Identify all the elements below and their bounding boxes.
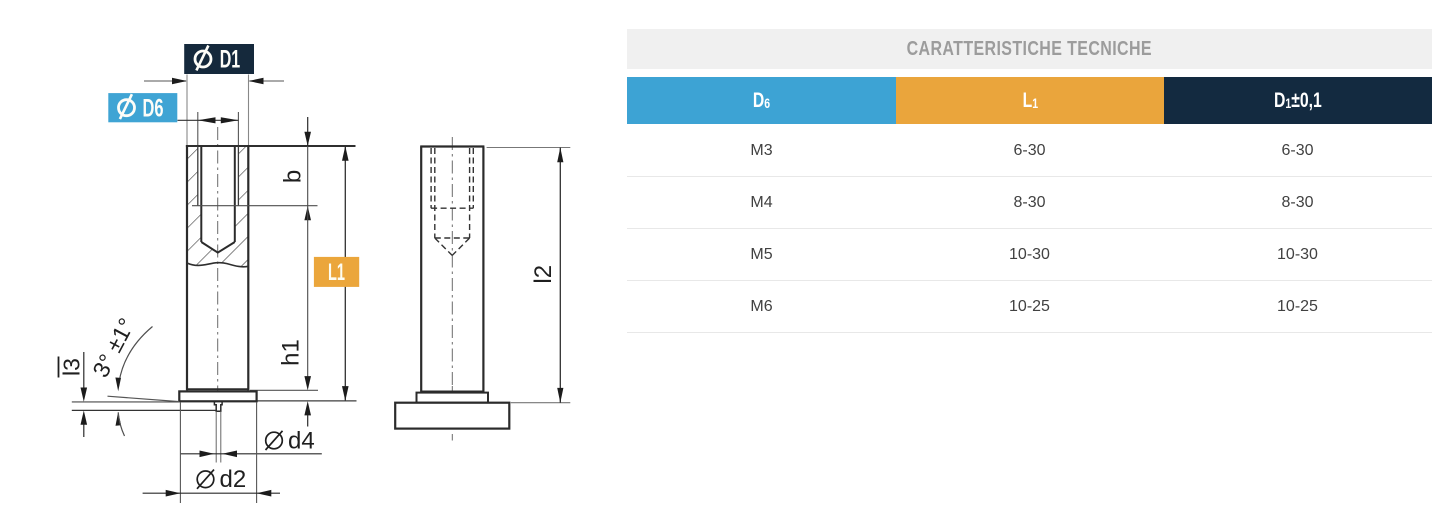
svg-text:d4: d4 <box>288 428 315 455</box>
svg-text:h1: h1 <box>278 339 305 366</box>
svg-text:l2: l2 <box>530 265 557 284</box>
svg-text:D6: D6 <box>143 94 164 122</box>
svg-text:d2: d2 <box>220 466 247 493</box>
svg-text:3° ±1°: 3° ±1° <box>87 314 140 382</box>
svg-text:D1: D1 <box>220 46 241 74</box>
svg-text:b: b <box>280 170 307 183</box>
svg-text:L1: L1 <box>328 259 345 286</box>
svg-text:l3: l3 <box>59 358 85 376</box>
